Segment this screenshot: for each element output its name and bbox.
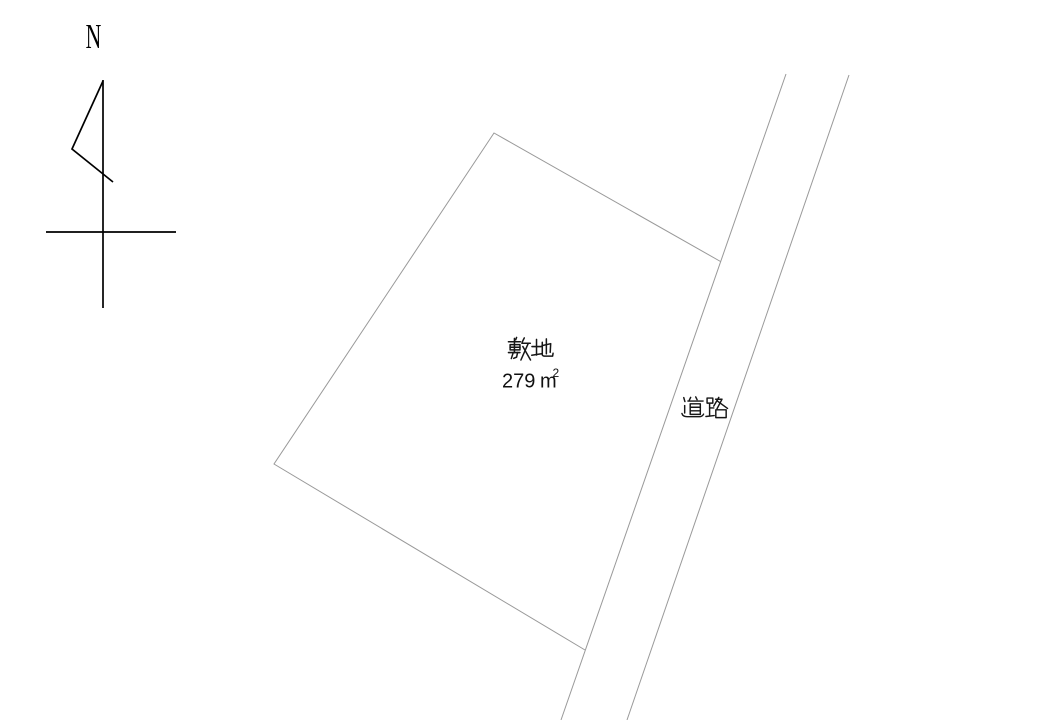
svg-text:279: 279: [502, 371, 535, 393]
svg-text:N: N: [86, 18, 102, 56]
svg-text:2: 2: [553, 366, 560, 380]
